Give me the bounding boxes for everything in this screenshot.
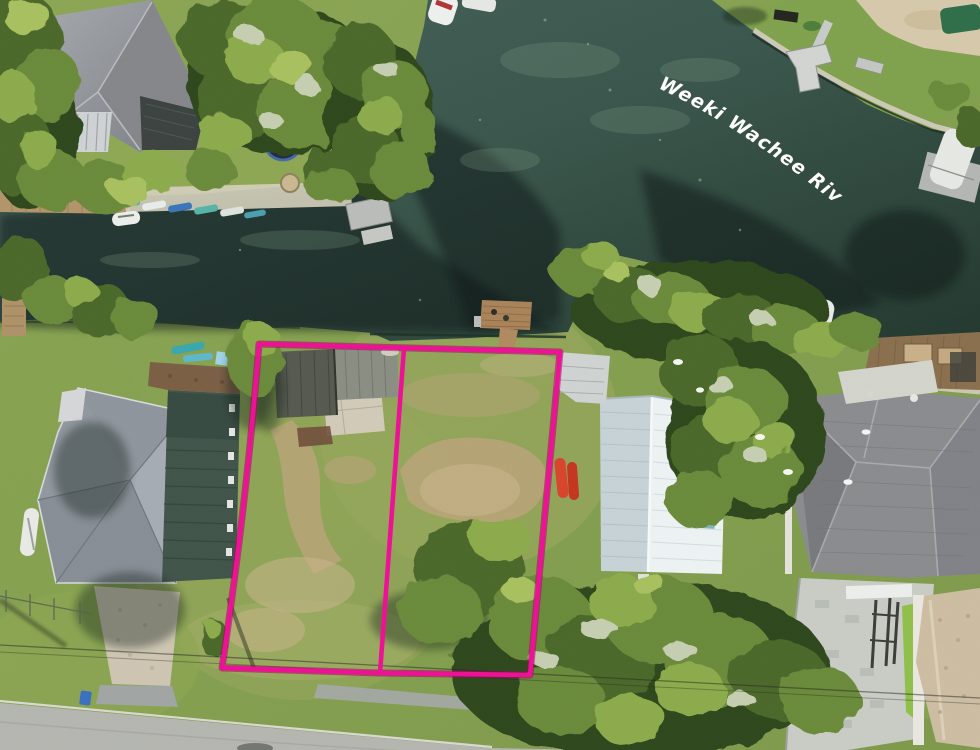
photo-grain [0, 0, 980, 750]
aerial-photo: Weeki Wachee River [0, 0, 980, 750]
